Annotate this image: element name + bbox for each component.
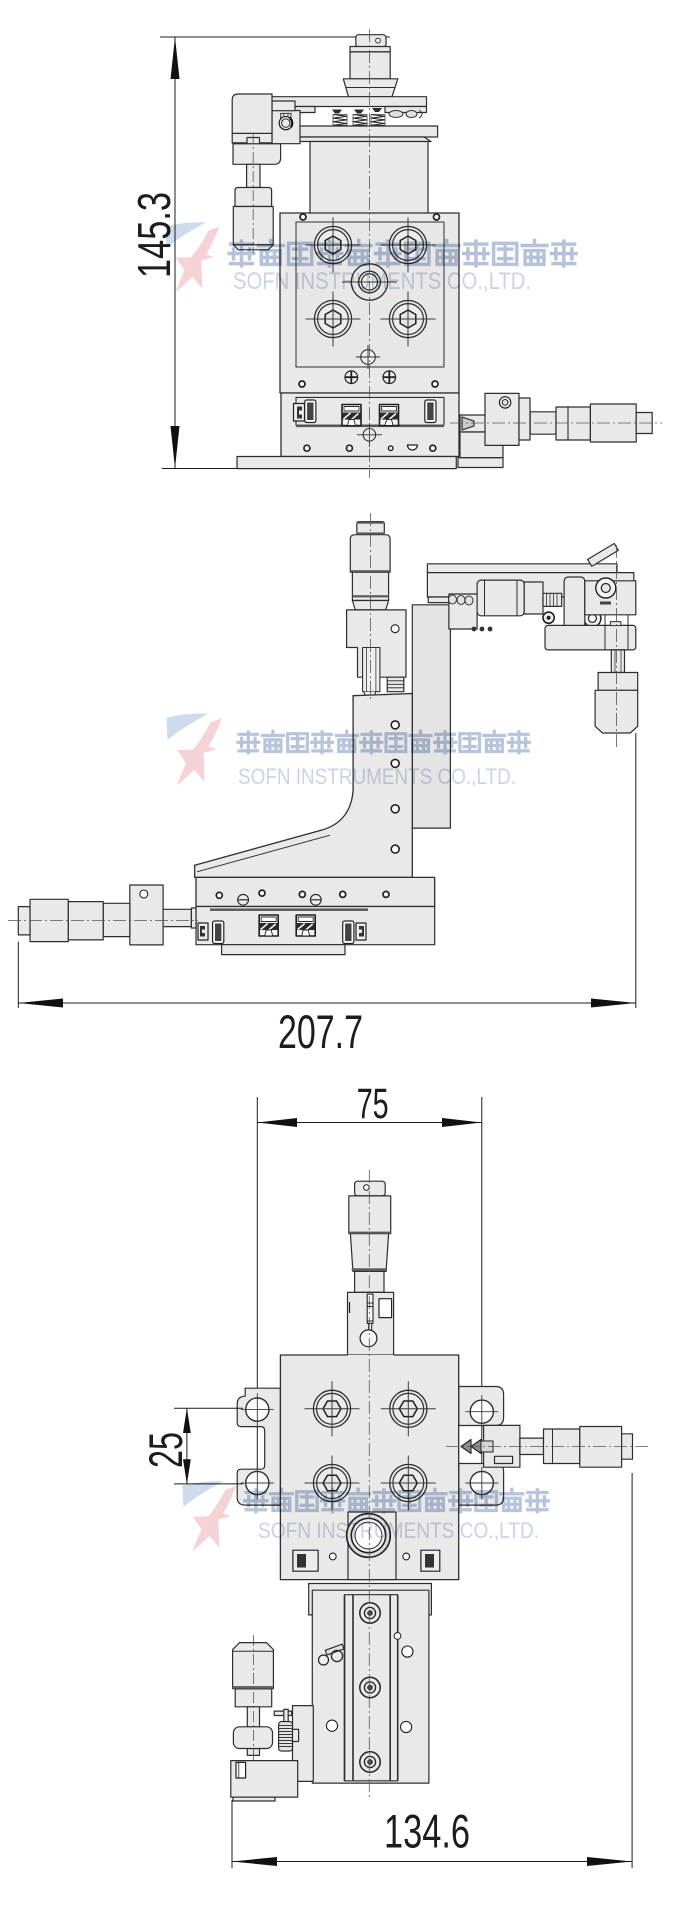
- svg-text:SOFN INSTRUMENTS CO.,LTD.: SOFN INSTRUMENTS CO.,LTD.: [233, 268, 531, 295]
- svg-text:25: 25: [139, 1432, 192, 1468]
- svg-text:207.7: 207.7: [278, 1005, 363, 1058]
- svg-text:75: 75: [357, 1080, 389, 1128]
- svg-text:134.6: 134.6: [384, 1805, 470, 1858]
- svg-text:SOFN INSTRUMENTS CO.,LTD.: SOFN INSTRUMENTS CO.,LTD.: [238, 764, 516, 789]
- svg-text:SOFN INSTRUMENTS CO.,LTD.: SOFN INSTRUMENTS CO.,LTD.: [258, 1518, 539, 1543]
